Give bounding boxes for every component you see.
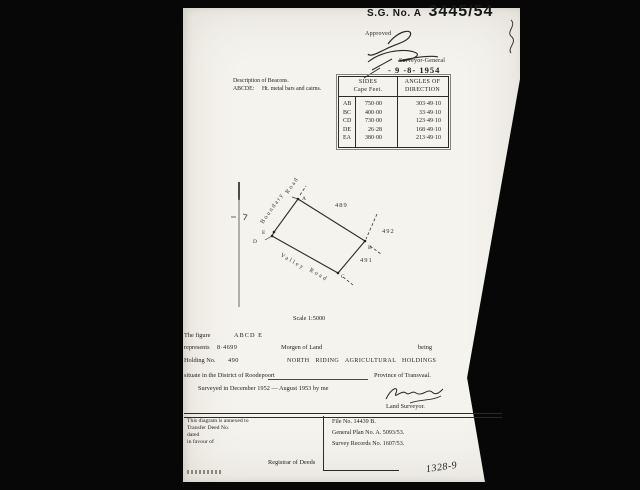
district-rule <box>268 379 368 380</box>
boundary-road-label-word2: Road <box>285 176 301 195</box>
side-angle: 33·49·10 <box>397 110 441 116</box>
plan-diagram: A B C D E 489 492 491 Boundary Road Vall… <box>222 175 468 325</box>
figure-label: The figure <box>184 333 210 339</box>
being-label: being <box>418 345 432 351</box>
corner-label-c: C <box>341 274 345 280</box>
holding-name: NORTH RIDING AGRICULTURAL HOLDINGS <box>287 358 436 364</box>
footer-bottom-rule <box>323 470 399 471</box>
boundary-tick-mark <box>243 214 247 220</box>
boundary-extension-dash <box>366 214 377 239</box>
valley-road-label-word1: Valley <box>279 253 306 272</box>
table-row: BC 400·00 33·49·10 <box>339 110 448 118</box>
annexed-line-4: in favour of <box>187 440 214 446</box>
area-value: 8·4699 <box>217 345 237 351</box>
annexed-line-2: Transfer Deed No. <box>187 426 229 432</box>
general-plan-number: General Plan No. A. 5093/53. <box>332 430 404 436</box>
holding-number: 490 <box>228 358 239 364</box>
sg-label: S.G. No. A <box>367 9 422 19</box>
area-unit: Morgen of Land <box>281 345 322 351</box>
beacons-title: Description of Beacons. <box>233 79 289 85</box>
angles-header-2: DIRECTION <box>397 87 448 93</box>
annexed-line-1: This diagram is annexed to <box>187 419 249 425</box>
figure-letters: ABCD E <box>234 333 263 339</box>
parcel-number-489: 489 <box>335 202 348 209</box>
boundary-extension-dash <box>300 186 306 195</box>
corner-label-a: A <box>302 196 306 202</box>
holding-label: Holding No. <box>184 358 216 364</box>
surveyor-title: Land Surveyor. <box>386 404 425 410</box>
side-angle: 168·49·10 <box>397 127 441 133</box>
table-row: EA 380·00 213·49·10 <box>339 135 448 143</box>
side-length: 730·00 <box>356 118 382 124</box>
printer-imprint <box>187 470 221 474</box>
situate-text: situate in the District of Roodepoort <box>184 373 275 379</box>
sides-angles-table: SIDES Cape Feet. ANGLES OF DIRECTION AB … <box>338 76 449 148</box>
boundary-road-label-word1: Boundary <box>260 192 286 225</box>
parcel-number-492: 492 <box>382 228 395 235</box>
footer-divider <box>323 416 324 470</box>
scanned-survey-document: S.G. No. A 3445/54 Approved Surveyor-Gen… <box>0 0 640 490</box>
side-length: 400·00 <box>356 110 382 116</box>
surveyed-text: Surveyed in December 1952 — August 1953 … <box>198 386 328 392</box>
corner-label-e: E <box>262 230 266 236</box>
beacon-tick <box>292 197 298 199</box>
file-number: File No. 14439 B. <box>332 419 376 425</box>
side-angle: 303·49·10 <box>397 101 441 107</box>
beacon-tick <box>265 236 272 240</box>
registrar-label: Registrar of Deeds <box>268 460 315 466</box>
side-length: 750·00 <box>356 101 382 107</box>
side-angle: 123·49·10 <box>397 118 441 124</box>
represents-label: represents <box>184 345 210 351</box>
surveyor-general-label: Surveyor-General <box>399 58 445 64</box>
valley-road-label-word2: Road <box>308 268 329 284</box>
survey-records-number: Survey Records No. 1607/53. <box>332 441 404 447</box>
side-name: AB <box>343 101 354 107</box>
approval-date: - 9 -8- 1954 <box>388 66 440 75</box>
sides-header-2: Cape Feet. <box>339 87 397 93</box>
angles-header-1: ANGLES OF <box>397 79 448 85</box>
side-name: EA <box>343 135 354 141</box>
side-angle: 213·49·10 <box>397 135 441 141</box>
side-name: BC <box>343 110 354 116</box>
sg-number-line: S.G. No. A 3445/54 <box>367 4 493 20</box>
side-name: CD <box>343 118 354 124</box>
table-row: AB 750·00 303·49·10 <box>339 101 448 109</box>
side-name: DE <box>343 127 354 133</box>
annexed-line-3: dated <box>187 433 199 439</box>
side-length: 380·00 <box>356 135 382 141</box>
sg-number: 3445/54 <box>429 4 494 20</box>
side-length: 26·28 <box>356 127 382 133</box>
table-row: CD 730·00 123·49·10 <box>339 118 448 126</box>
parcel-number-491: 491 <box>360 257 373 264</box>
corner-label-d: D <box>253 239 257 245</box>
beacons-description: Ht. metal bars and cairns. <box>262 87 321 93</box>
holding-polygon <box>272 199 365 273</box>
corner-label-b: B <box>368 245 372 251</box>
sides-header-1: SIDES <box>339 79 397 85</box>
scale-label: Scale 1:5000 <box>293 316 325 322</box>
edge-bracket-mark <box>505 19 519 55</box>
beacons-letters: ABCDE: <box>233 87 254 93</box>
province-text: Province of Transvaal. <box>374 373 431 379</box>
table-row: DE 26·28 168·49·10 <box>339 127 448 135</box>
